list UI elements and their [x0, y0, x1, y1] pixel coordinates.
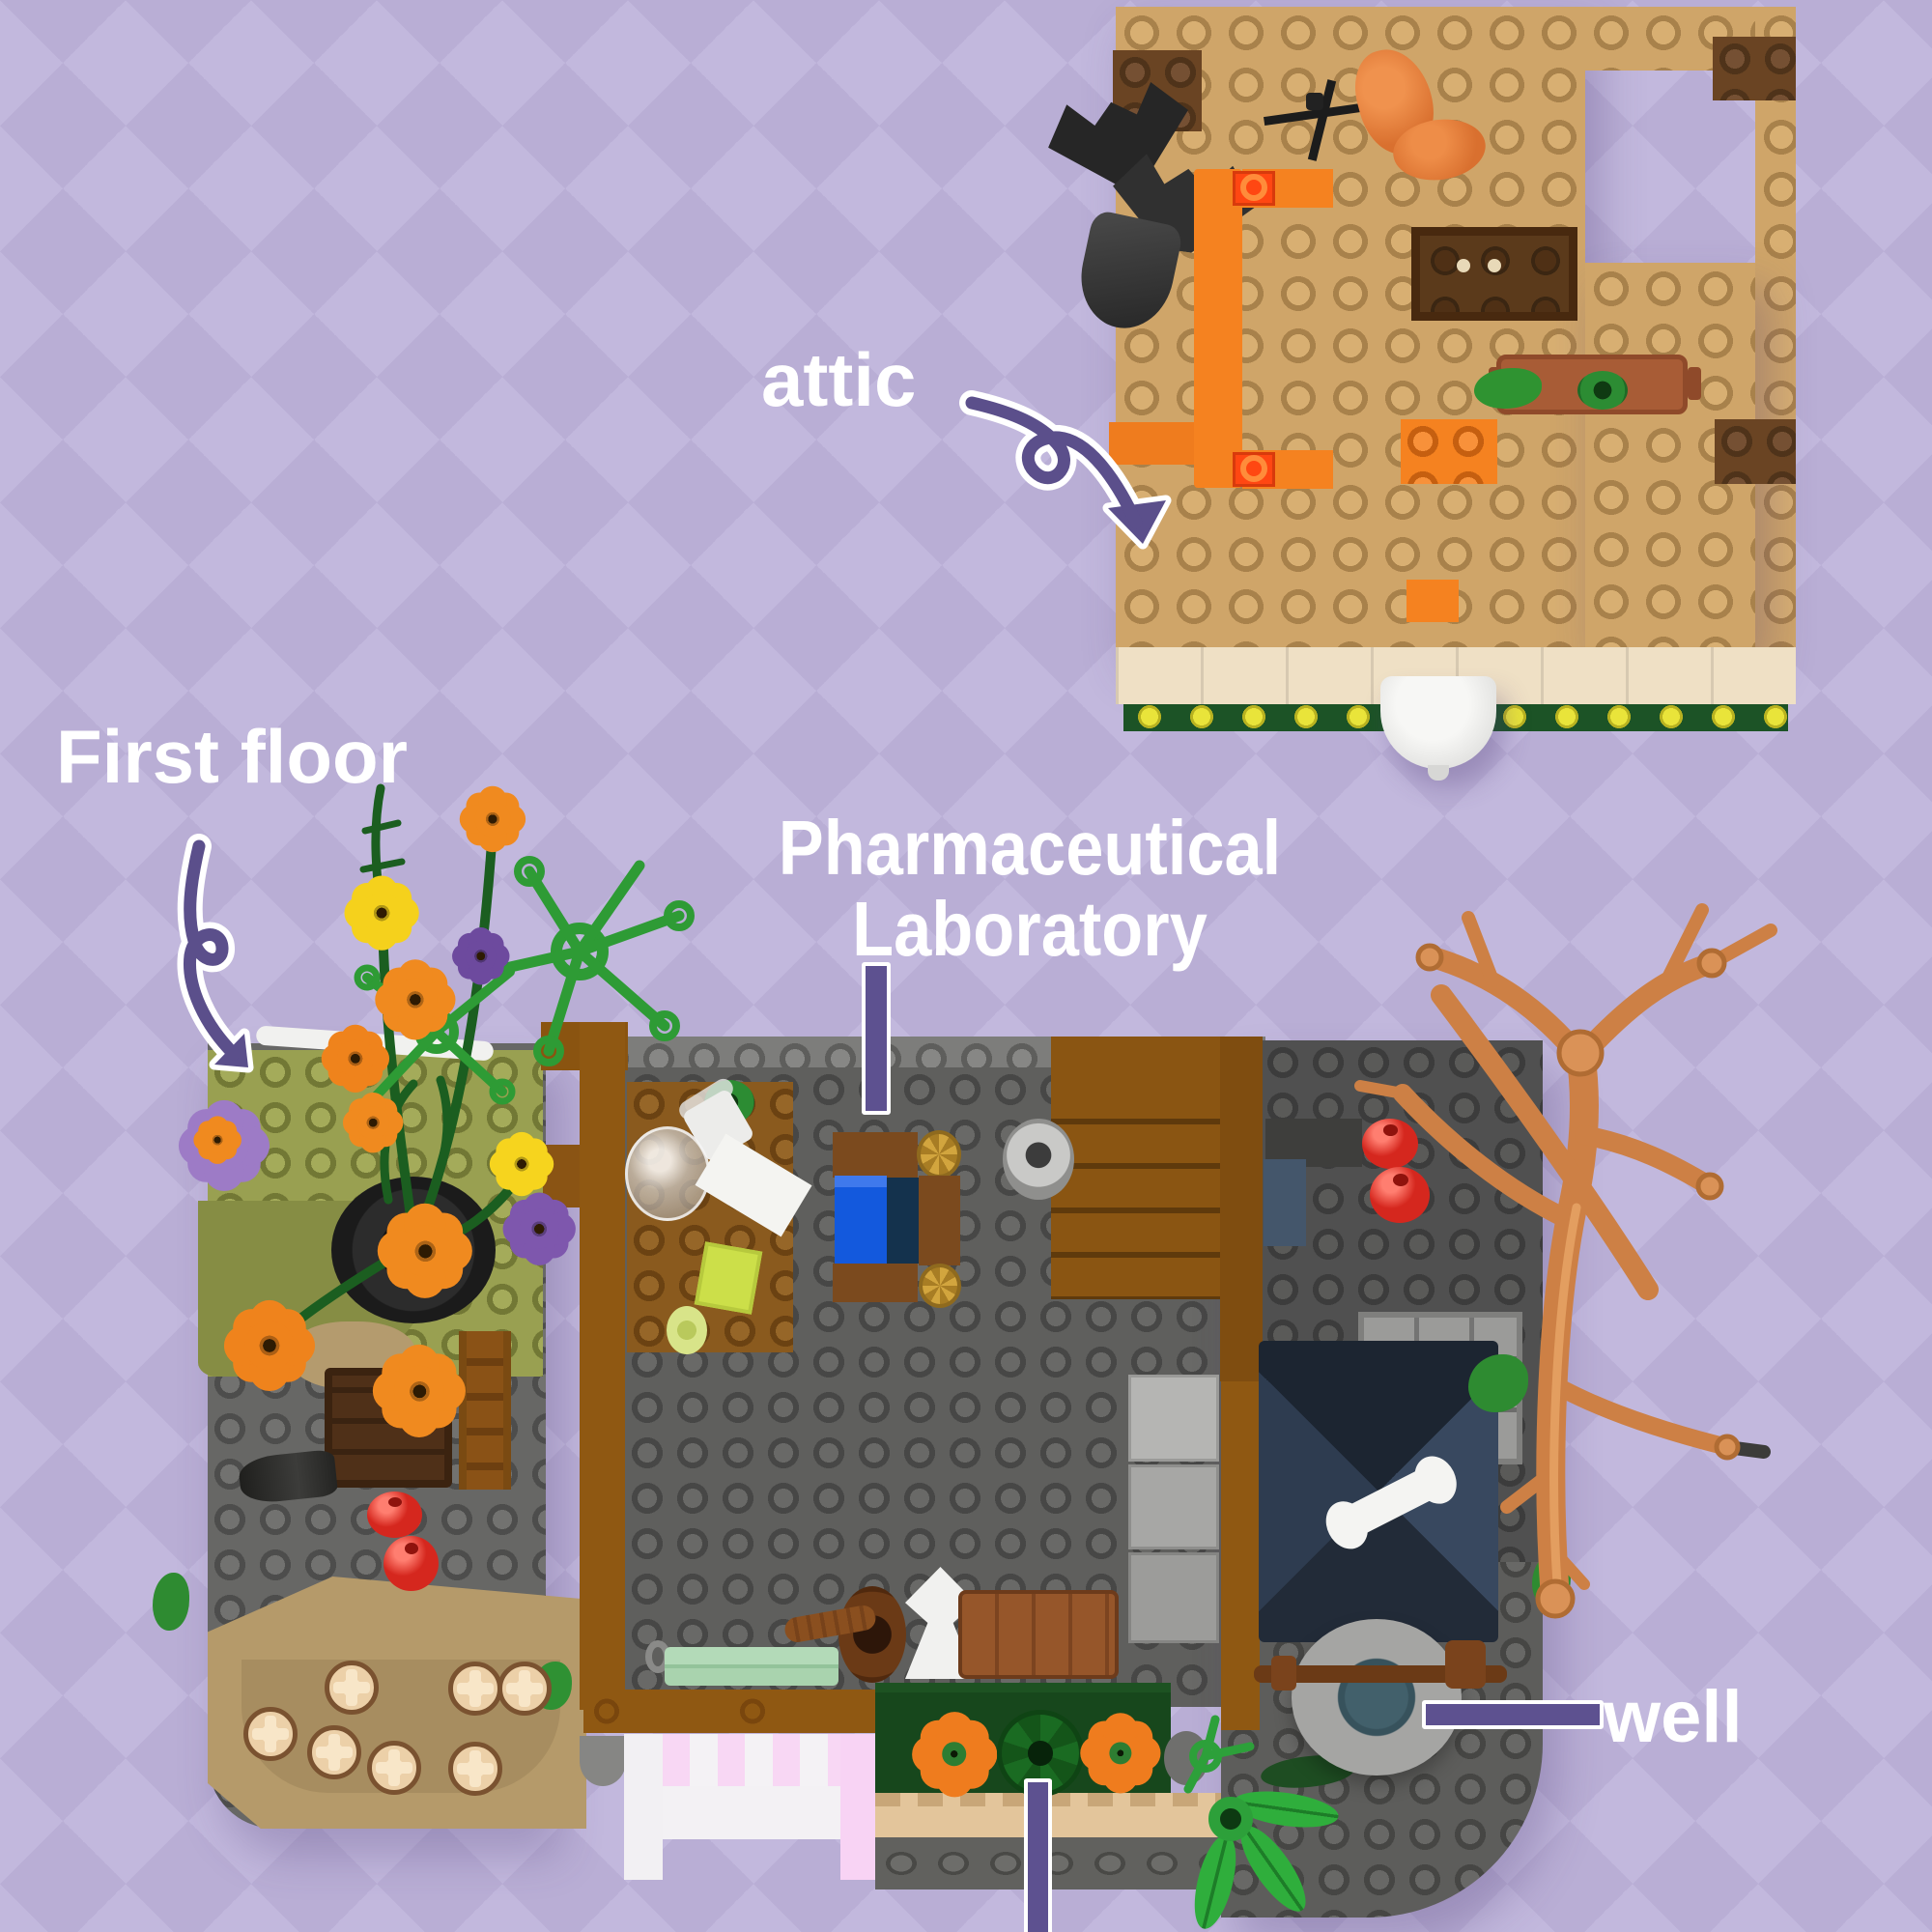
arrow-annotations	[0, 0, 1932, 1932]
attic-arrow-icon	[972, 403, 1166, 544]
first-floor-arrow-icon	[189, 846, 248, 1067]
poster: attic First floor Pharmaceutical Laborat…	[0, 0, 1932, 1932]
